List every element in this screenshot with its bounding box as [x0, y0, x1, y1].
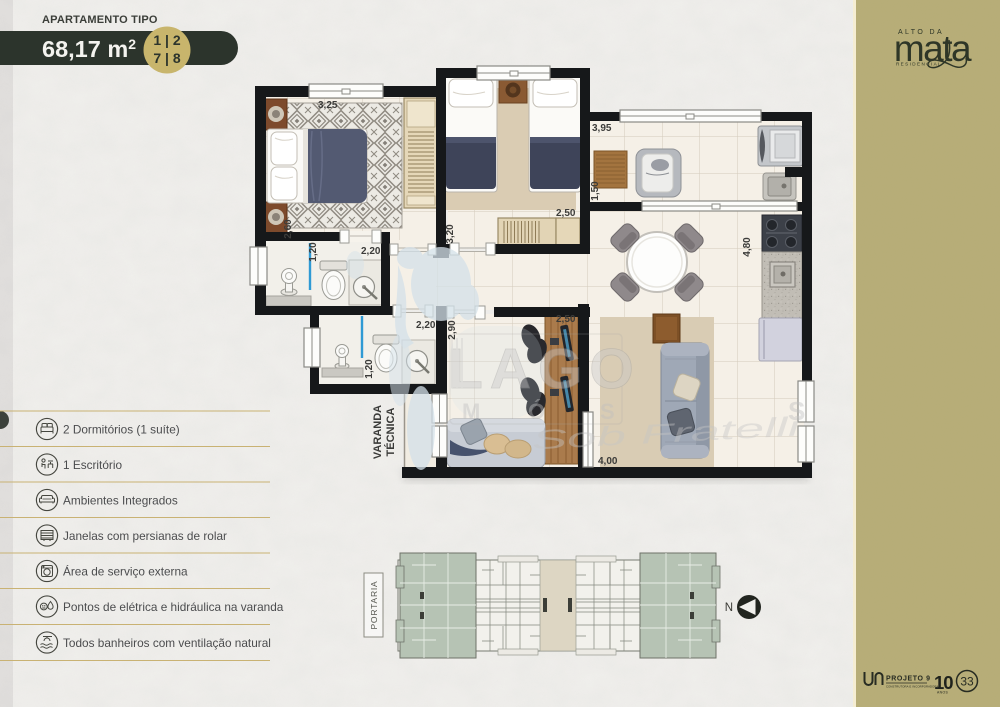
svg-text:CONSTRUTORA E INCORPORADORA: CONSTRUTORA E INCORPORADORA: [886, 685, 939, 689]
svg-text:2 Dormitórios (1 suíte): 2 Dormitórios (1 suíte): [63, 423, 180, 437]
svg-text:2,50: 2,50: [556, 208, 576, 219]
svg-text:LAGO: LAGO: [448, 337, 641, 401]
svg-text:PORTARIA: PORTARIA: [369, 580, 379, 629]
svg-text:3,25: 3,25: [318, 100, 338, 111]
svg-text:Ó: Ó: [528, 399, 545, 424]
svg-text:Área de serviço externa: Área de serviço externa: [63, 565, 188, 579]
svg-text:1,20: 1,20: [364, 359, 375, 379]
svg-text:3,20: 3,20: [445, 224, 456, 244]
svg-text:1,50: 1,50: [590, 181, 601, 201]
svg-text:33: 33: [960, 675, 974, 689]
svg-text:1 Escritório: 1 Escritório: [63, 458, 122, 472]
svg-text:APARTAMENTO TIPO: APARTAMENTO TIPO: [42, 14, 158, 26]
svg-text:RESIDENCIAL: RESIDENCIAL: [896, 62, 942, 67]
svg-text:Todos banheiros com ventilação: Todos banheiros com ventilação natural: [63, 636, 271, 650]
svg-text:N: N: [725, 602, 733, 614]
svg-text:4,00: 4,00: [598, 456, 618, 467]
svg-text:4,80: 4,80: [742, 237, 753, 257]
svg-text:1,20: 1,20: [308, 242, 319, 262]
svg-text:68,17 m2: 68,17 m2: [42, 36, 136, 62]
svg-text:Pontos de elétrica e hidráulic: Pontos de elétrica e hidráulica na varan…: [63, 600, 284, 614]
svg-text:2,20: 2,20: [361, 246, 381, 257]
svg-text:7 | 8: 7 | 8: [153, 50, 180, 66]
svg-text:PROJETO 9: PROJETO 9: [886, 676, 931, 683]
svg-text:3,95: 3,95: [592, 123, 612, 134]
svg-text:2,60: 2,60: [283, 219, 294, 239]
svg-text:2,90: 2,90: [447, 320, 458, 340]
svg-text:Janelas com persianas de rolar: Janelas com persianas de rolar: [63, 529, 227, 543]
svg-text:1 | 2: 1 | 2: [153, 32, 180, 48]
svg-text:2,20: 2,20: [416, 320, 436, 331]
svg-text:M: M: [462, 399, 480, 424]
svg-text:2,50: 2,50: [556, 314, 576, 325]
svg-text:TÉCNICA: TÉCNICA: [384, 408, 397, 457]
svg-text:Ambientes Integrados: Ambientes Integrados: [63, 494, 178, 508]
svg-text:VARANDA: VARANDA: [372, 405, 384, 459]
svg-text:ANOS: ANOS: [937, 691, 949, 695]
